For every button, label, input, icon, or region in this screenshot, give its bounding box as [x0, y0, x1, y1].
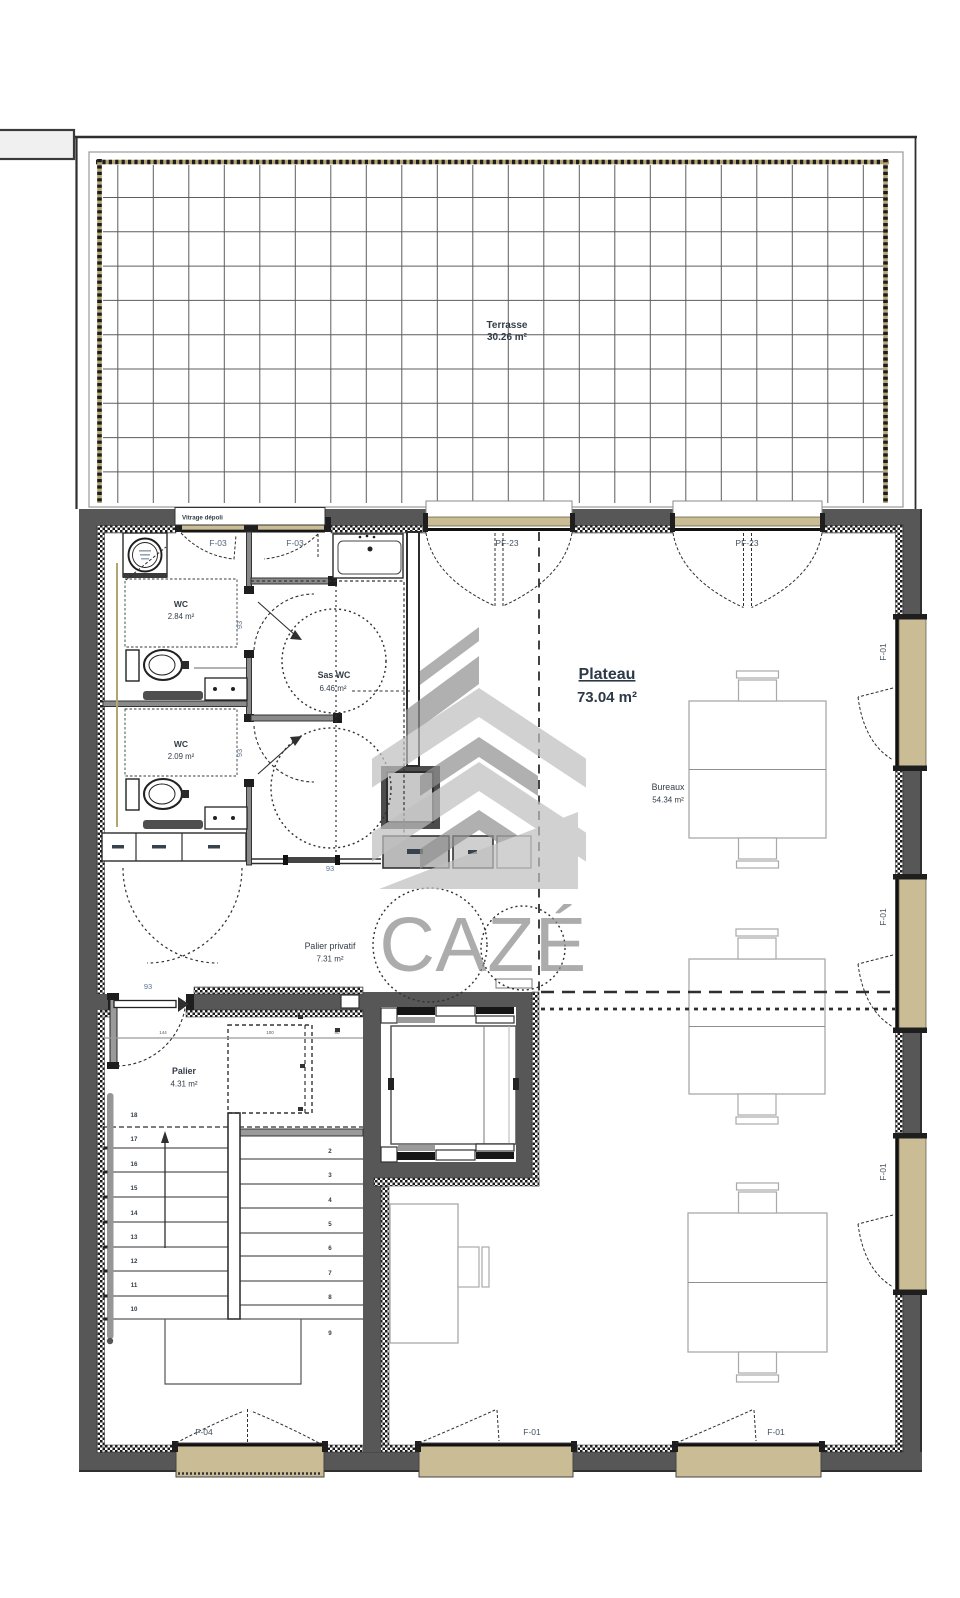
svg-text:Plateau: Plateau [579, 666, 636, 683]
svg-text:18: 18 [131, 1112, 138, 1119]
svg-text:F-03: F-03 [209, 538, 227, 548]
svg-text:Sas WC: Sas WC [318, 670, 351, 680]
svg-text:6: 6 [328, 1245, 332, 1252]
svg-text:WC: WC [174, 739, 188, 749]
svg-text:Terrasse: Terrasse [487, 320, 528, 331]
svg-text:2.09 m²: 2.09 m² [168, 752, 195, 761]
svg-text:144: 144 [159, 1030, 167, 1035]
svg-text:9: 9 [328, 1330, 332, 1337]
svg-text:93: 93 [235, 749, 244, 757]
svg-text:WC: WC [174, 599, 188, 609]
svg-text:Vitrage dépoli: Vitrage dépoli [182, 515, 223, 522]
svg-text:100: 100 [266, 1030, 274, 1035]
svg-text:4: 4 [328, 1197, 332, 1204]
svg-text:93: 93 [144, 982, 152, 991]
svg-text:12: 12 [131, 1258, 138, 1265]
svg-text:6.46 m²: 6.46 m² [319, 684, 346, 693]
svg-text:F-01: F-01 [767, 1427, 785, 1437]
svg-text:Palier: Palier [172, 1066, 197, 1076]
svg-text:2: 2 [328, 1148, 332, 1155]
svg-text:4.31 m²: 4.31 m² [170, 1080, 197, 1089]
svg-text:Bureaux: Bureaux [652, 782, 685, 792]
svg-text:93: 93 [235, 621, 244, 629]
svg-text:7.31 m²: 7.31 m² [316, 955, 343, 964]
svg-text:10: 10 [131, 1306, 138, 1313]
svg-text:73.04 m²: 73.04 m² [577, 689, 637, 706]
svg-text:54.34 m²: 54.34 m² [652, 796, 684, 805]
svg-text:F-01: F-01 [878, 643, 888, 661]
svg-text:3: 3 [328, 1172, 332, 1179]
svg-text:7: 7 [328, 1270, 332, 1277]
svg-text:5: 5 [328, 1221, 332, 1228]
svg-text:2.84 m²: 2.84 m² [168, 612, 195, 621]
svg-text:17: 17 [131, 1136, 138, 1143]
svg-text:13: 13 [131, 1234, 138, 1241]
svg-text:CAZÉ: CAZÉ [379, 902, 586, 988]
svg-text:PF-23: PF-23 [735, 538, 758, 548]
svg-text:11: 11 [131, 1282, 138, 1289]
svg-text:14: 14 [131, 1210, 138, 1217]
svg-text:F-01: F-01 [878, 908, 888, 926]
svg-text:15: 15 [131, 1185, 138, 1192]
svg-text:16: 16 [131, 1161, 138, 1168]
svg-text:F-01: F-01 [523, 1427, 541, 1437]
svg-text:Palier privatif: Palier privatif [305, 941, 356, 951]
svg-text:F-03: F-03 [286, 538, 304, 548]
svg-text:PF-23: PF-23 [495, 538, 518, 548]
svg-text:F-01: F-01 [878, 1163, 888, 1181]
svg-text:93: 93 [326, 864, 334, 873]
svg-text:F-04: F-04 [195, 1427, 213, 1437]
svg-text:30.26 m²: 30.26 m² [487, 332, 528, 343]
svg-text:8: 8 [328, 1294, 332, 1301]
